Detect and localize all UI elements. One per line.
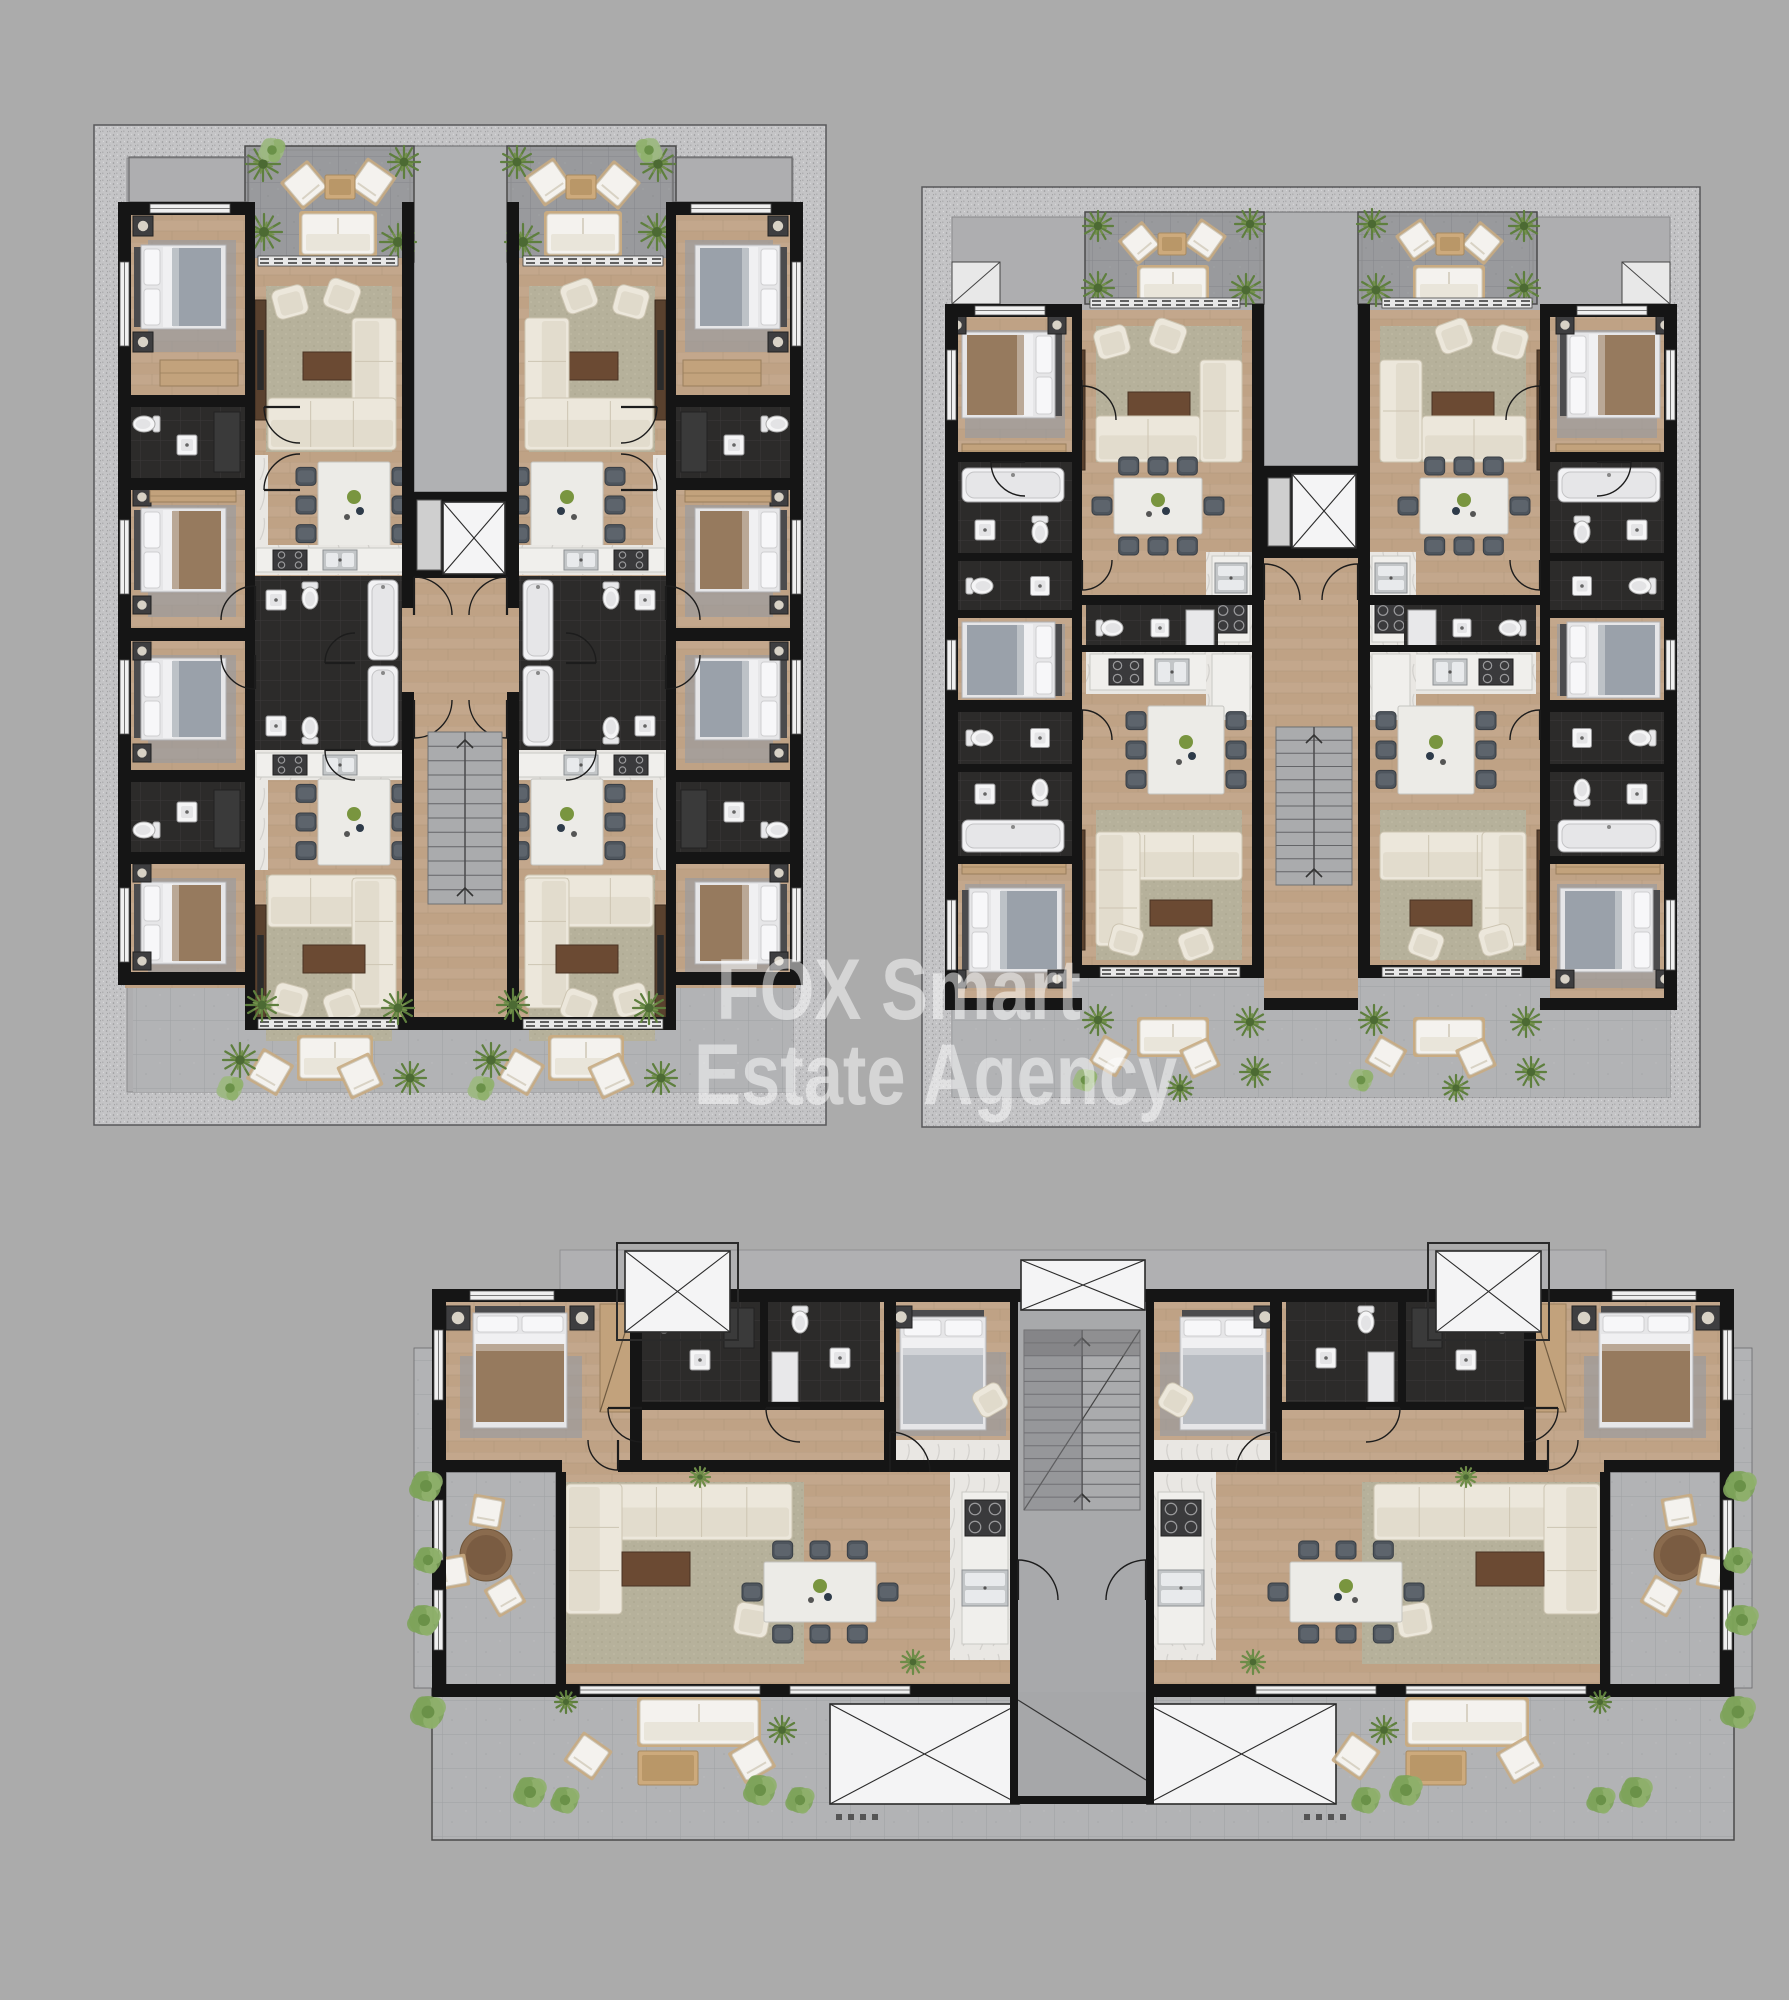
- svg-text:Estate Agency: Estate Agency: [694, 1026, 1178, 1122]
- svg-text:FOX Smart: FOX Smart: [717, 941, 1081, 1037]
